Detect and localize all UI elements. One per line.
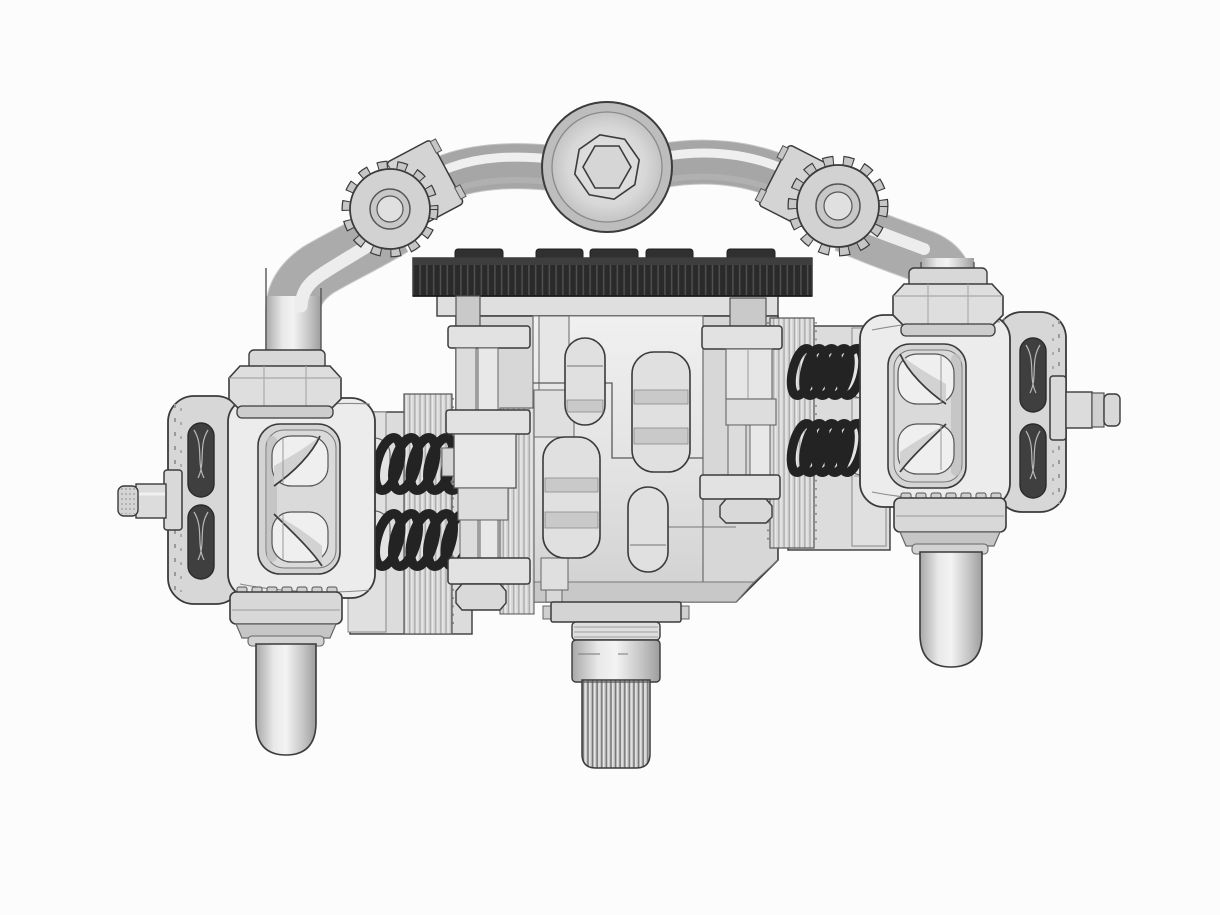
shaft-splines (582, 680, 650, 768)
banjo-right-bore (824, 192, 852, 220)
union-nut-left-hex (229, 366, 341, 410)
head-port-right-lower (1020, 424, 1046, 498)
window-b-band (634, 390, 688, 404)
pushrod-right-barrel (726, 349, 772, 399)
window-c-band (545, 512, 598, 528)
stub-right-shaft (1066, 392, 1092, 428)
cad-render (0, 0, 1220, 915)
union-nut-right (893, 268, 1003, 336)
pushrod-right-mid (726, 399, 776, 425)
exhaust-left-pipe (256, 644, 316, 755)
head-port-left-upper (188, 423, 214, 497)
timing-gear (413, 249, 812, 296)
exhaust-right-nut (894, 498, 1006, 532)
pushrod-right-clamp2 (700, 475, 780, 499)
gear-top-face (413, 258, 812, 265)
pushrod-left-clamp1 (448, 326, 530, 348)
cad-viewport (0, 0, 1220, 915)
pushrod-right-rod (750, 425, 770, 477)
banjo-left-bore (377, 196, 403, 222)
exhaust-right-pipe (920, 552, 982, 667)
pushrod-left-rod (456, 348, 476, 412)
union-nut-right-hex (893, 284, 1003, 326)
hex-socket-cap (542, 102, 672, 232)
union-nut-right-washer (901, 324, 995, 336)
head-port-left-lower (188, 505, 214, 579)
pushrod-right-rod (728, 425, 746, 477)
window-b (632, 352, 690, 472)
window-b-band (634, 428, 688, 444)
window-c (543, 437, 600, 558)
stub-right-tip (1104, 394, 1120, 426)
pushrod-left-mid (458, 488, 508, 520)
stub-right-flange (1050, 376, 1066, 440)
union-nut-left-washer (237, 406, 333, 418)
pushrod-left-nut (456, 584, 506, 610)
elbow-left-straight (266, 296, 321, 358)
stub-left-thread-tip (118, 486, 138, 516)
rocker-cover-left (228, 398, 375, 598)
shaft-mount-plate (551, 602, 681, 622)
exhaust-left-nut (230, 592, 342, 624)
pushrod-left-top (456, 296, 480, 328)
stub-left-shaft (136, 484, 166, 518)
face-stud-tip (546, 590, 562, 602)
pushrod-right-top (730, 298, 766, 328)
stub-right-thread-band (1092, 393, 1104, 427)
crankcase-top-plate (437, 294, 778, 316)
head-port-right-upper (1020, 338, 1046, 412)
pushrod-left-rod (478, 348, 498, 412)
shaft-body (572, 640, 660, 682)
pushrod-right-nut (720, 499, 772, 523)
window-c-band (545, 478, 598, 492)
pushrod-left-clamp3 (448, 558, 530, 584)
pushrod-right-clamp1 (702, 326, 782, 349)
pushrod-left-barrel (454, 434, 516, 488)
pushrod-left-clamp2 (446, 410, 530, 434)
pushrod-left-rod (480, 520, 498, 562)
face-stud-foot (541, 558, 568, 590)
window-a-band (567, 400, 603, 412)
window-d (628, 487, 668, 572)
pushrod-left-rod (460, 520, 478, 562)
rocker-cover-right (860, 315, 1010, 507)
